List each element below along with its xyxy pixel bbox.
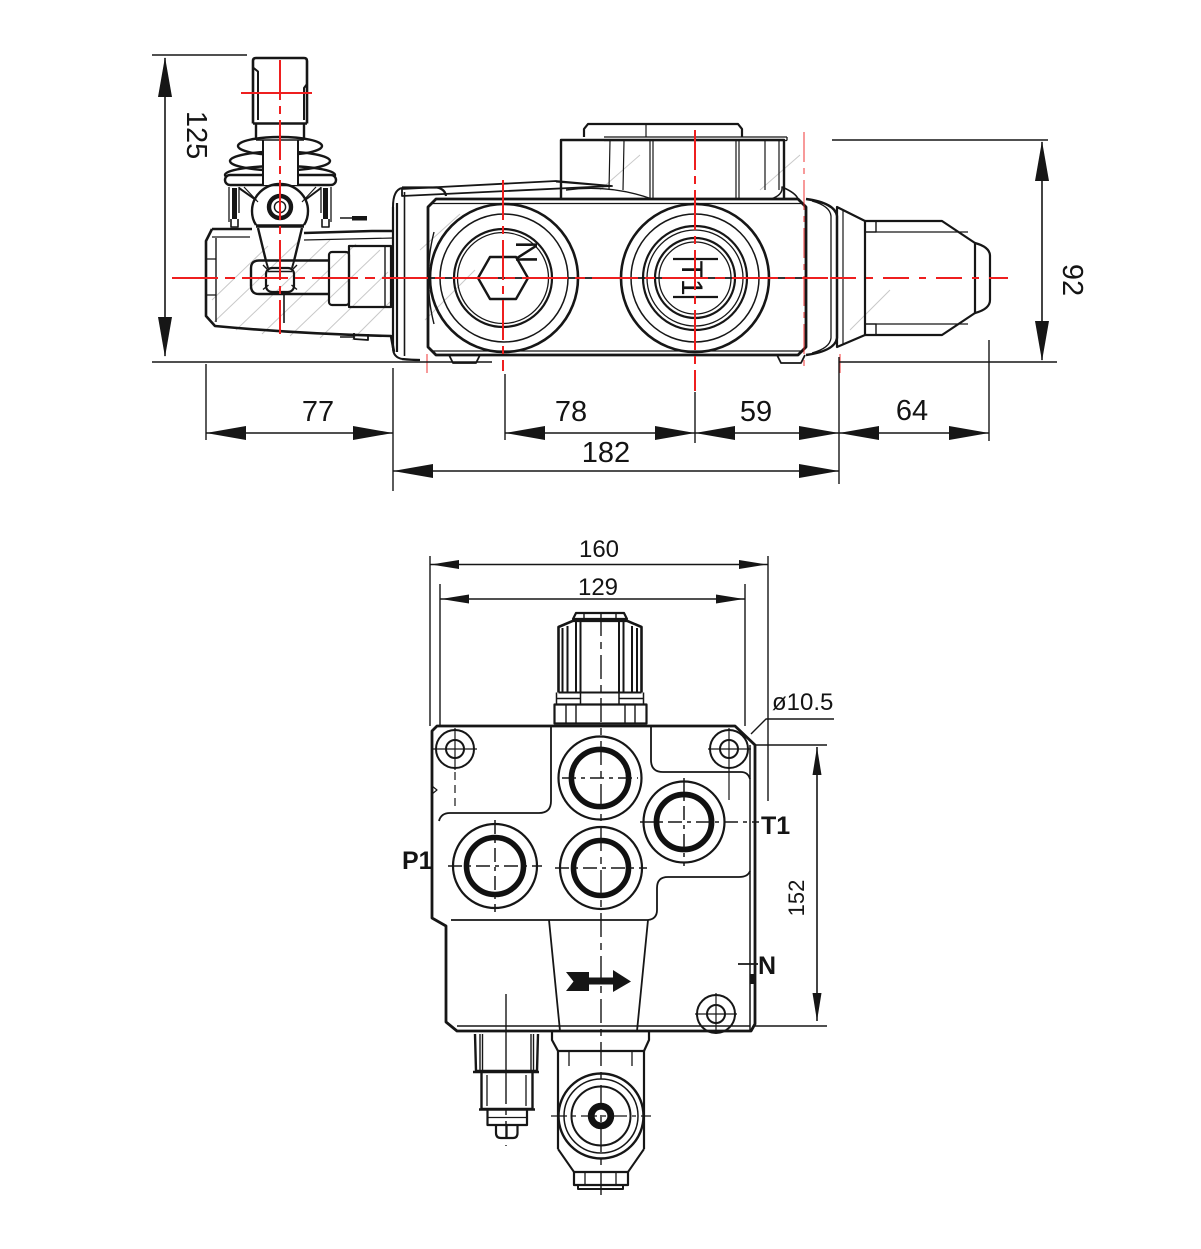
svg-text:182: 182 <box>582 437 630 469</box>
svg-text:152: 152 <box>784 880 809 917</box>
svg-text:125: 125 <box>180 111 212 159</box>
svg-text:64: 64 <box>896 395 928 427</box>
svg-text:59: 59 <box>740 396 772 428</box>
svg-text:78: 78 <box>555 396 587 428</box>
svg-text:160: 160 <box>579 536 619 563</box>
svg-text:P1: P1 <box>402 847 433 875</box>
svg-text:N: N <box>509 241 544 263</box>
svg-text:129: 129 <box>578 574 618 601</box>
svg-text:T1: T1 <box>761 812 790 840</box>
svg-text:92: 92 <box>1056 264 1088 296</box>
svg-text:ø10.5: ø10.5 <box>772 689 833 716</box>
svg-text:N: N <box>758 952 776 980</box>
svg-text:77: 77 <box>302 396 334 428</box>
